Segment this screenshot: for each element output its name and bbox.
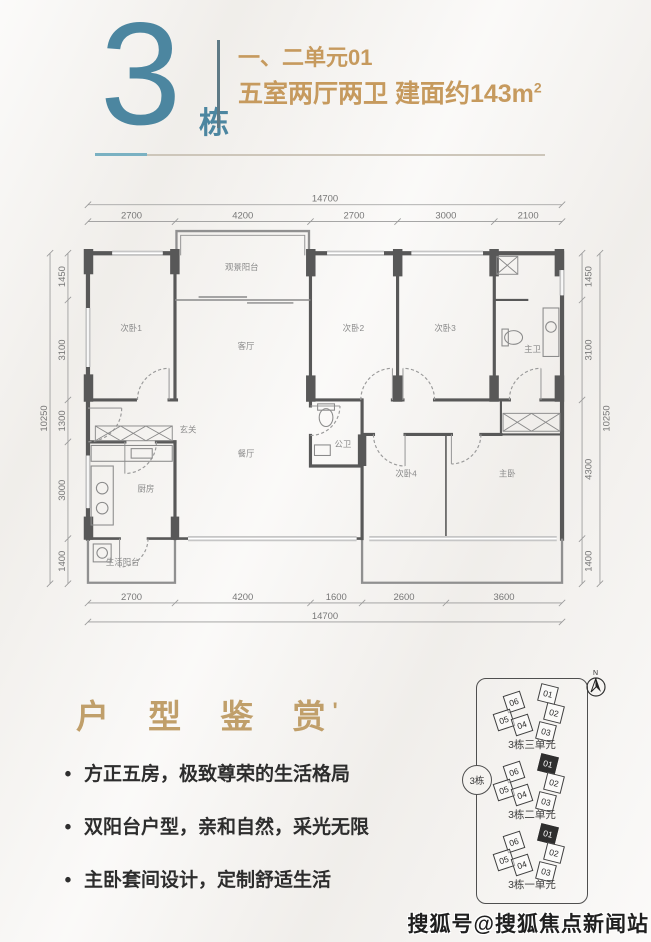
sliding-door (175, 297, 310, 303)
svg-text:1450: 1450 (57, 266, 68, 287)
header-divider (217, 40, 220, 128)
svg-text:14700: 14700 (312, 611, 338, 622)
room-label-bedroom4: 次卧4 (395, 469, 417, 479)
room-label-master_bedroom: 主卧 (499, 469, 516, 479)
svg-text:4200: 4200 (232, 210, 253, 221)
svg-text:1400: 1400 (57, 551, 68, 572)
building-suffix: 栋 (199, 98, 229, 142)
thin-rule (147, 154, 545, 156)
wardrobe-hatches (95, 256, 560, 440)
building-badge: 3栋 (462, 765, 492, 795)
selling-points: •方正五房，极致尊荣的生活格局 •双阳台户型，亲和自然，采光无限 •主卧套间设计… (52, 762, 452, 921)
bullet-dot: • (52, 868, 84, 894)
balcony-rails (88, 231, 562, 583)
room-label-master_bath: 主卫 (524, 344, 541, 354)
room-label-bedroom1: 次卧1 (120, 323, 142, 333)
svg-text:10250: 10250 (39, 405, 50, 431)
unit-tile: 04 (511, 854, 534, 877)
svg-text:10250: 10250 (601, 405, 612, 431)
sup-2: 2 (534, 80, 542, 96)
list-item: •方正五房，极致尊荣的生活格局 (52, 762, 452, 788)
svg-text:2700: 2700 (343, 210, 364, 221)
unit-tile: 02 (543, 772, 565, 794)
accent-rule (95, 153, 147, 156)
room-label-living: 客厅 (238, 341, 255, 351)
svg-text:1300: 1300 (57, 410, 68, 431)
compass-icon: N (581, 667, 611, 701)
list-item: •主卧套间设计，定制舒适生活 (52, 868, 452, 894)
unit-cluster: 0601050402033栋三单元 (477, 685, 587, 753)
svg-text:3000: 3000 (435, 210, 456, 221)
room-label-dining: 餐厅 (238, 449, 255, 459)
title-prime-mark: ' (333, 698, 338, 723)
floorplan-svg: 次卧1观景阳台客厅次卧2次卧3主卫玄关餐厅厨房生活阳台公卫次卧4主卧 27004… (30, 190, 620, 643)
unit-tile: 02 (543, 842, 565, 864)
unit-cluster: 0601050402033栋一单元 (477, 825, 587, 893)
svg-text:3100: 3100 (584, 339, 595, 360)
unit-tile: 04 (511, 784, 534, 807)
watermark: 搜狐号@搜狐焦点新闻站 (408, 908, 649, 938)
room-label-view_balcony: 观景阳台 (225, 262, 259, 272)
bullet-dot: • (52, 815, 84, 841)
cluster-label: 3栋二单元 (477, 807, 587, 822)
list-item: •双阳台户型，亲和自然，采光无限 (52, 815, 452, 841)
spec-title: 五室两厅两卫 建面约143m2 (238, 74, 542, 110)
svg-text:3000: 3000 (57, 480, 68, 501)
unit-cluster: 0601050402033栋二单元 (477, 755, 587, 823)
unit-tile: 02 (543, 702, 565, 724)
building-number: 3 (100, 14, 177, 134)
cluster-label: 3栋三单元 (477, 737, 587, 752)
svg-text:4200: 4200 (232, 592, 253, 603)
svg-text:1450: 1450 (584, 266, 595, 287)
room-label-guest_bath: 公卫 (335, 439, 352, 449)
svg-text:4300: 4300 (584, 459, 595, 480)
room-label-bedroom3: 次卧3 (434, 323, 456, 333)
room-label-kitchen: 厨房 (138, 483, 155, 493)
unit-map: 0601050402033栋三单元0601050402033栋二单元060105… (476, 678, 588, 904)
svg-text:14700: 14700 (312, 194, 338, 205)
room-label-bedroom2: 次卧2 (343, 323, 365, 333)
unit-title: 一、二单元01 (238, 40, 372, 72)
svg-text:2600: 2600 (393, 592, 414, 603)
bullet-dot: • (52, 762, 84, 788)
poster-page: 3 栋 一、二单元01 五室两厅两卫 建面约143m2 (0, 0, 651, 942)
room-label-service_balcony: 生活阳台 (106, 557, 140, 567)
svg-text:3100: 3100 (57, 339, 68, 360)
svg-text:2100: 2100 (518, 210, 539, 221)
svg-text:1400: 1400 (584, 551, 595, 572)
unit-tile: 04 (511, 714, 534, 737)
svg-text:3600: 3600 (493, 592, 514, 603)
room-label-foyer: 玄关 (180, 424, 197, 434)
wall-pillars (84, 249, 564, 540)
svg-text:2700: 2700 (121, 592, 142, 603)
svg-text:1600: 1600 (326, 592, 347, 603)
cluster-label: 3栋一单元 (477, 877, 587, 892)
svg-text:2700: 2700 (121, 210, 142, 221)
svg-text:N: N (593, 670, 598, 677)
section-title: 户 型 鉴 赏' (76, 690, 338, 738)
